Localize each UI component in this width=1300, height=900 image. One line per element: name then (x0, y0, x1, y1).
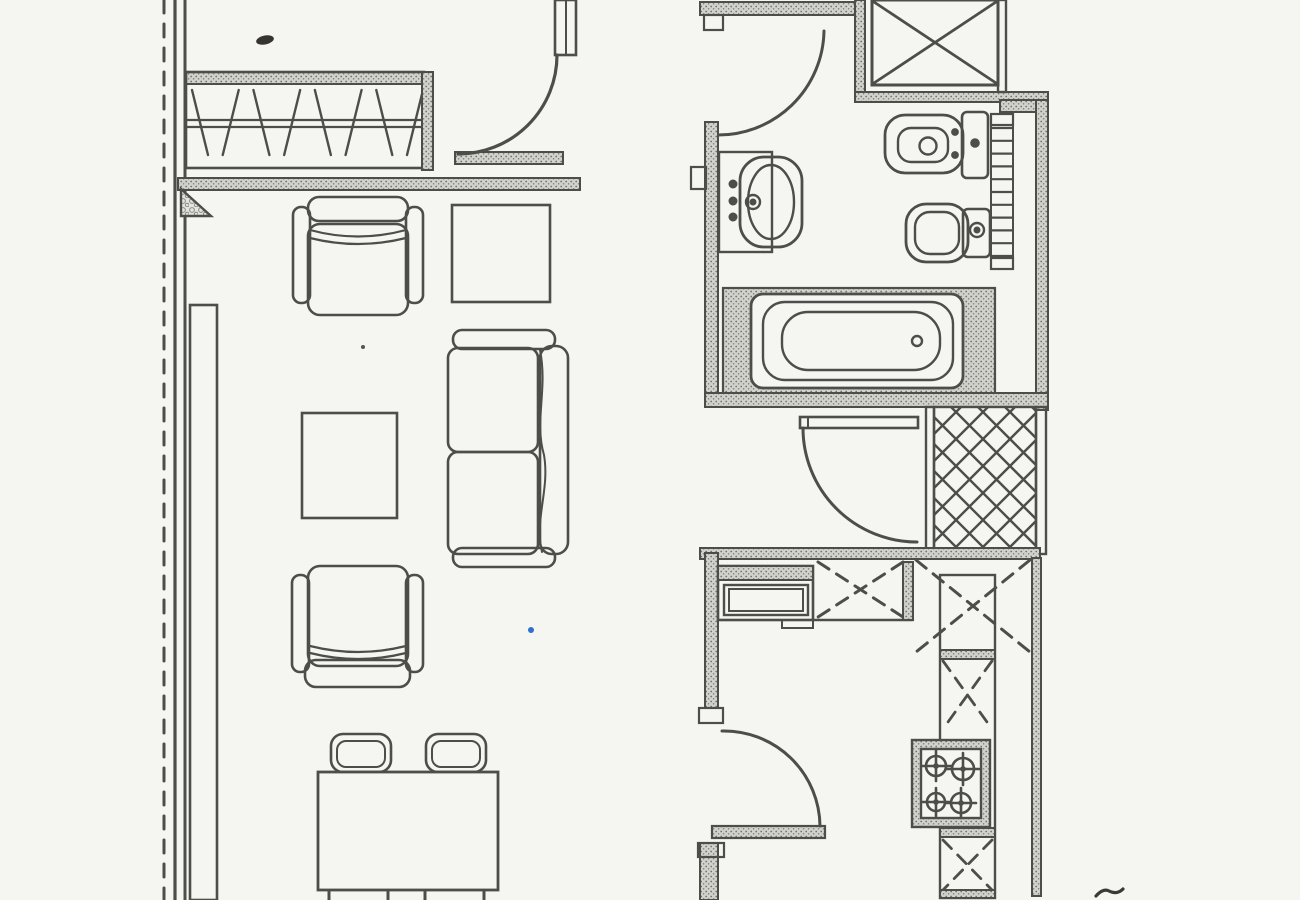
kitchen-door-jamb-upper (699, 708, 723, 723)
sofa-seat2 (448, 452, 538, 554)
shaft-right-wall (1036, 407, 1046, 554)
kitchen-left-wall (705, 553, 718, 708)
toilet-flush-button (972, 140, 979, 147)
side-counter-outline (940, 575, 995, 898)
sofa-arm-top (453, 330, 555, 349)
sofa-back (540, 346, 568, 554)
corner-buttress-triangle (181, 189, 211, 216)
kitchen-sink-inner2 (729, 589, 803, 611)
side-table (452, 205, 550, 302)
bidet-faucet-dot (975, 228, 979, 232)
bathroom-right-jog-wall (1000, 100, 1038, 112)
sink-faucet-dot (751, 200, 755, 204)
entry-door-arc (458, 55, 557, 154)
hall-door-arc (803, 428, 917, 542)
toilet-bowl (885, 115, 963, 173)
bathroom-door-arc (716, 31, 824, 135)
floor-plan-svg (0, 0, 1300, 900)
armchair1-cushion-line1 (310, 230, 406, 237)
bathroom-bottom-wall (705, 393, 1048, 407)
kitchen-right-wall (1032, 558, 1041, 896)
upper-cabinet-x2-corner (916, 560, 1030, 652)
bathroom-door-jamb (704, 15, 723, 30)
armchair2-cushion-line2 (310, 653, 406, 659)
sofa-arm-bottom (453, 548, 555, 567)
armchair2-back (305, 660, 410, 687)
kitchen-door-arc (722, 731, 820, 826)
armchair1-back (308, 197, 408, 221)
bathroom-left-wall (705, 122, 718, 407)
pen-checkmark (1096, 889, 1123, 896)
towel-radiator-rungs (991, 128, 1013, 256)
living-divider-wall (178, 178, 580, 190)
sink-tap-knobs (730, 181, 736, 220)
side-counter-divider1 (940, 650, 995, 659)
toilet-hinge-dots (952, 129, 957, 157)
towel-radiator-cap-top (991, 114, 1013, 125)
side-cabinet-x1 (943, 661, 992, 729)
duct-left-wall (855, 0, 865, 95)
counter-divider (903, 562, 913, 620)
upper-cabinet-x1 (818, 562, 903, 617)
kitchen-door-leaf (712, 826, 825, 838)
wardrobe-partition-wall (422, 72, 433, 170)
armchair1-seat (308, 224, 408, 315)
hall-door-leaf (800, 417, 918, 428)
side-counter-divider2 (940, 828, 995, 837)
armchair2-arm-left (292, 575, 309, 672)
bathroom-top-wall (700, 2, 857, 15)
kitchen-sink-top-band (718, 566, 813, 580)
towel-radiator-cap-bottom (991, 258, 1013, 269)
bathroom-right-wall (1036, 100, 1048, 410)
floor-plan-sheet (0, 0, 1300, 900)
bidet-bowl-inner (915, 212, 959, 254)
wardrobe-top-wall (185, 72, 425, 84)
coffee-table (302, 413, 397, 518)
small-speck-mark (361, 345, 365, 349)
kitchen-top-wall (700, 548, 1040, 559)
sideboard (190, 305, 217, 900)
ink-blot-mark (255, 34, 274, 47)
armchair2-cushion-line1 (310, 646, 406, 652)
wall-niche-box (691, 167, 706, 189)
dining-chair-a-inner (337, 741, 385, 767)
kitchen-left-wall-lower (700, 843, 718, 900)
wardrobe-hangers (192, 90, 423, 155)
toilet-drain (920, 138, 937, 155)
side-cabinet-x2 (943, 840, 992, 890)
blue-dot-mark (528, 627, 534, 633)
sofa-seat1 (448, 348, 538, 452)
armchair1-cushion-line2 (310, 238, 406, 244)
side-counter-bottom (940, 890, 995, 898)
dining-table (318, 772, 498, 890)
toilet-bowl-inner (898, 128, 948, 162)
shaft-left-wall (926, 407, 934, 554)
dining-chair-b-inner (432, 741, 480, 767)
